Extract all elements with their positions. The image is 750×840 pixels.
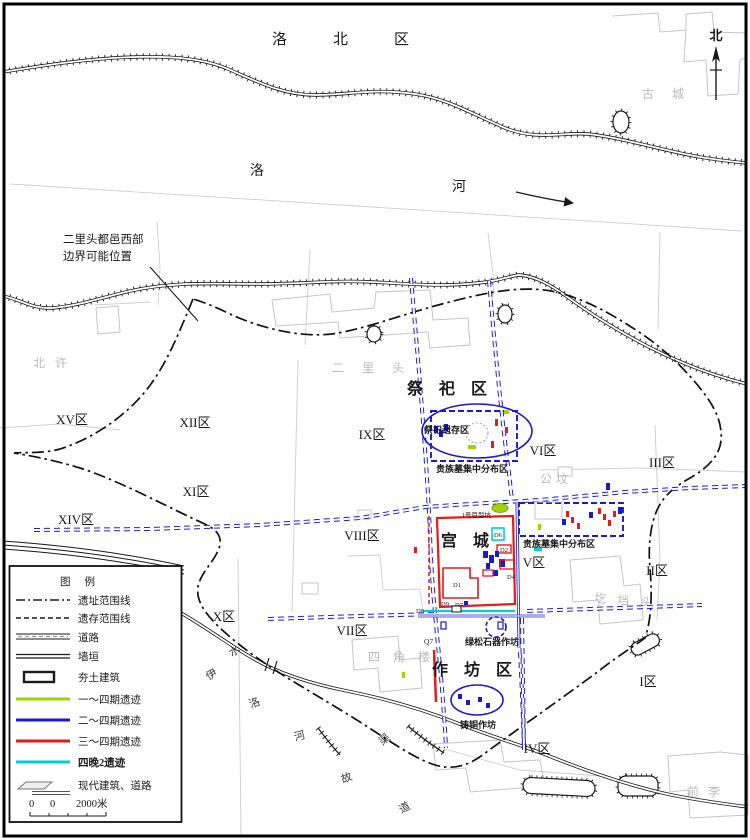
tomb-mark [589,512,593,518]
workshop-mark [478,697,482,702]
workshop-mark [458,694,462,699]
palace-building [493,570,498,576]
tomb-mark [603,514,606,520]
tomb-mark [538,524,541,530]
workshop-area-label: 作坊区 [432,660,528,679]
pond [613,111,629,133]
tomb-mark [618,507,622,514]
zone-label-vii: VII区 [336,623,367,638]
workshop-mark [466,700,470,705]
palace-building [486,563,490,569]
sacrificial-remains-label: 祭祀遗存区 [423,424,469,435]
noble-tombs-label-2: 贵族墓集中分布区 [523,538,595,549]
legend-label: 夯土建筑 [78,671,120,684]
palace-d4-label: D4 [507,574,516,581]
tomb-mark [598,508,601,514]
zone-label-vi: VI区 [530,443,557,458]
erlitou-site-map: 北许 二里头 古城 公坟 圪垱头 四角楼 前李 水 伊 洛 [0,0,750,840]
village-label-gongfen: 公坟 [540,472,572,486]
palace-d1-label: D1 [453,582,461,589]
remain-mark [504,410,509,414]
scale-tick-label: 0 [29,799,34,810]
workshop-mark [486,703,490,708]
palace-label: 宫城 [441,531,505,550]
remain-mark [414,547,417,553]
zone-label-xii: XII区 [179,415,210,430]
remain-mark [495,419,498,426]
tomb-mark [571,517,574,523]
pond [498,305,512,323]
tomb-mark [608,520,611,526]
legend-label: 遗址范围线 [78,594,131,607]
legend-label: 墙垣 [78,650,99,663]
palace-d8-label: D8 [416,608,424,615]
map-svg: 北许 二里头 古城 公坟 圪垱头 四角楼 前李 水 伊 洛 [0,0,750,840]
zone-label-ii: II区 [646,563,668,578]
building-outline [302,583,318,594]
giant-pit-shape [492,504,508,513]
he-char-label: 河 [452,179,466,195]
noble-tombs-label-1: 贵族墓集中分布区 [436,463,508,474]
zone-label-xiv: XIV区 [58,512,94,527]
scale-end-label: 2000米 [76,797,108,810]
compass-label: 北 [709,28,722,43]
pond [523,777,596,797]
zone-label-v: V区 [523,555,545,570]
legend-label: 道路 [78,631,99,644]
scale-tick-label: 0 [50,799,55,810]
zone-label-xv: XV区 [56,412,88,427]
zone-label-iv: IV区 [524,741,551,756]
village-label-beixu: 北许 [33,356,77,370]
remain-mark [505,427,508,433]
tomb-mark [566,511,569,517]
legend-label: 一～四期遗迹 [78,693,141,706]
remain-mark [402,672,405,678]
sacrificial-area-label: 祭祀区 [406,379,503,398]
remain-mark [464,601,468,605]
pond [367,326,381,342]
palace-d9-label: D9 [441,601,449,608]
zone-label-ix: IX区 [359,427,386,442]
q7-label: Q7 [424,637,433,646]
village-label-qianli: 前李 [687,784,729,799]
legend-title: 图例 [60,575,109,588]
palace-building [483,551,488,558]
tomb-mark [613,511,616,517]
village-label-erlitou: 二里头 [332,361,422,375]
village-label-gucheng: 古城 [642,86,702,101]
legend-label: 现代建筑、道路 [78,779,152,792]
zone-label-i: I区 [639,674,656,689]
tomb-mark [606,483,610,490]
sacrificial-pond [466,423,488,443]
palace-building [495,551,499,557]
building-on-road [452,606,461,612]
legend-label: 遗存范围线 [78,612,131,625]
bronze-workshop-label: 铸铜作坊 [460,719,496,730]
tomb-mark [577,523,580,529]
boundary-note-line1: 二里头都邑西部 [63,232,144,246]
zone-label-x: X区 [213,609,235,624]
legend-symbol-rammed [24,672,54,682]
tomb-mark [562,519,566,525]
remain-mark [491,441,494,448]
zone-label-viii: VIII区 [344,528,379,543]
legend-label: 二～四期遗迹 [78,714,141,727]
palace-building [489,555,494,563]
north-region-label: 洛北区 [272,31,455,48]
legend-label: 四晚2遗迹 [78,756,126,769]
legend-label: 三～四期遗迹 [78,735,141,748]
zone-label-xi: XI区 [183,484,210,499]
zone-label-iii: III区 [649,455,675,470]
boundary-note-line2: 边界可能位置 [63,249,132,263]
legend: 图例 遗址范围线 遗存范围线 道路 墙垣 夯土建筑 一～四期遗迹 [10,566,182,822]
turquoise-workshop-label: 绿松石器作坊 [465,636,519,647]
luo-char-label: 洛 [250,163,264,179]
giant-pit-label: 1号巨型坑 [462,510,492,519]
remain-mark [468,445,476,449]
